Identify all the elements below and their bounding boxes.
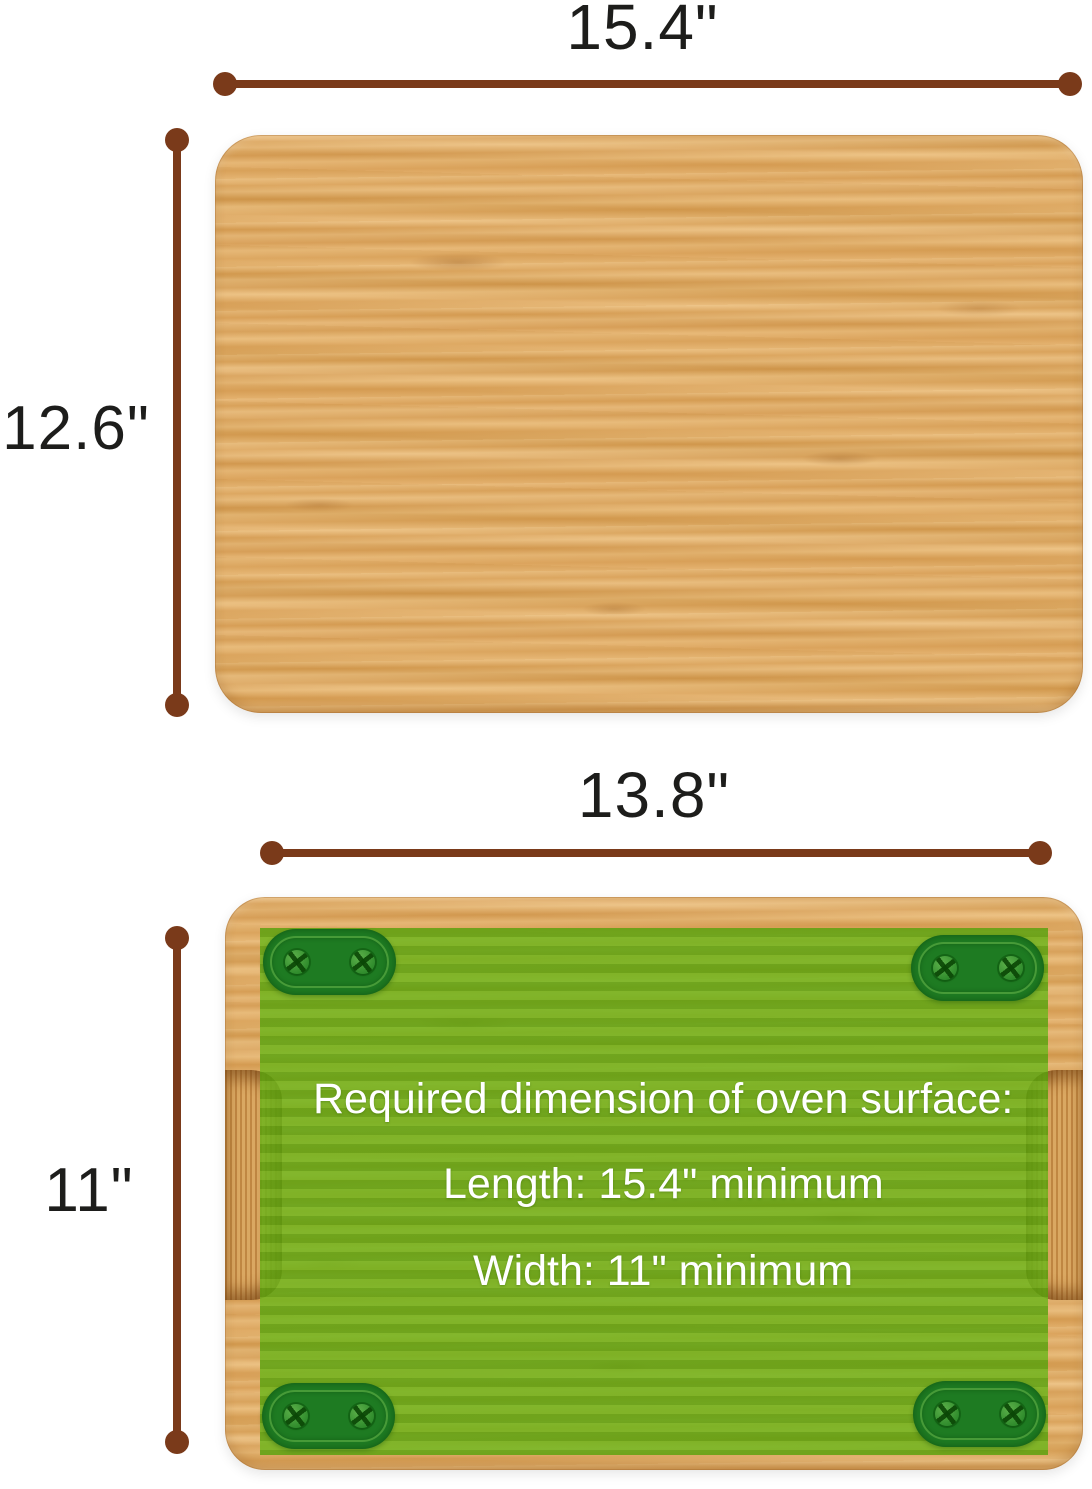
screw-icon [1001,1402,1025,1426]
screw-icon [351,950,375,974]
bottom-board-width-dimension-line [272,849,1040,857]
dimension-endpoint-dot [1058,72,1082,96]
rubber-foot [263,929,396,995]
rubber-foot [262,1383,395,1449]
product-dimension-diagram: 15.4" 12.6" 13.8" 11" Required dimension… [0,0,1092,1489]
cutting-board-top-view [215,135,1083,713]
screw-icon [285,950,309,974]
dimension-endpoint-dot [165,693,189,717]
screw-icon [933,956,957,980]
overlay-width-requirement: Width: 11" minimum [473,1245,853,1299]
screw-icon [935,1402,959,1426]
dimension-endpoint-dot [165,926,189,950]
top-board-width-dimension-line [225,80,1070,88]
bottom-board-height-dimension-line [173,938,181,1442]
bottom-board-height-label: 11" [25,1158,153,1223]
cutting-board-bottom-view: Required dimension of oven surface: Leng… [225,897,1083,1470]
top-board-width-label: 15.4" [215,0,1070,61]
rubber-foot [913,1381,1046,1447]
rubber-foot [911,935,1044,1001]
screw-icon [999,956,1023,980]
dimension-endpoint-dot [165,1430,189,1454]
dimension-endpoint-dot [260,841,284,865]
overlay-length-requirement: Length: 15.4" minimum [443,1158,884,1212]
bottom-board-width-label: 13.8" [225,762,1083,829]
screw-icon [284,1404,308,1428]
dimension-endpoint-dot [1028,841,1052,865]
overlay-heading: Required dimension of oven surface: [313,1073,1013,1127]
dimension-endpoint-dot [165,128,189,152]
top-board-height-dimension-line [173,140,181,705]
top-board-height-label: 12.6" [0,396,152,461]
screw-icon [350,1404,374,1428]
dimension-endpoint-dot [213,72,237,96]
oven-surface-overlay: Required dimension of oven surface: Leng… [260,928,1048,1455]
